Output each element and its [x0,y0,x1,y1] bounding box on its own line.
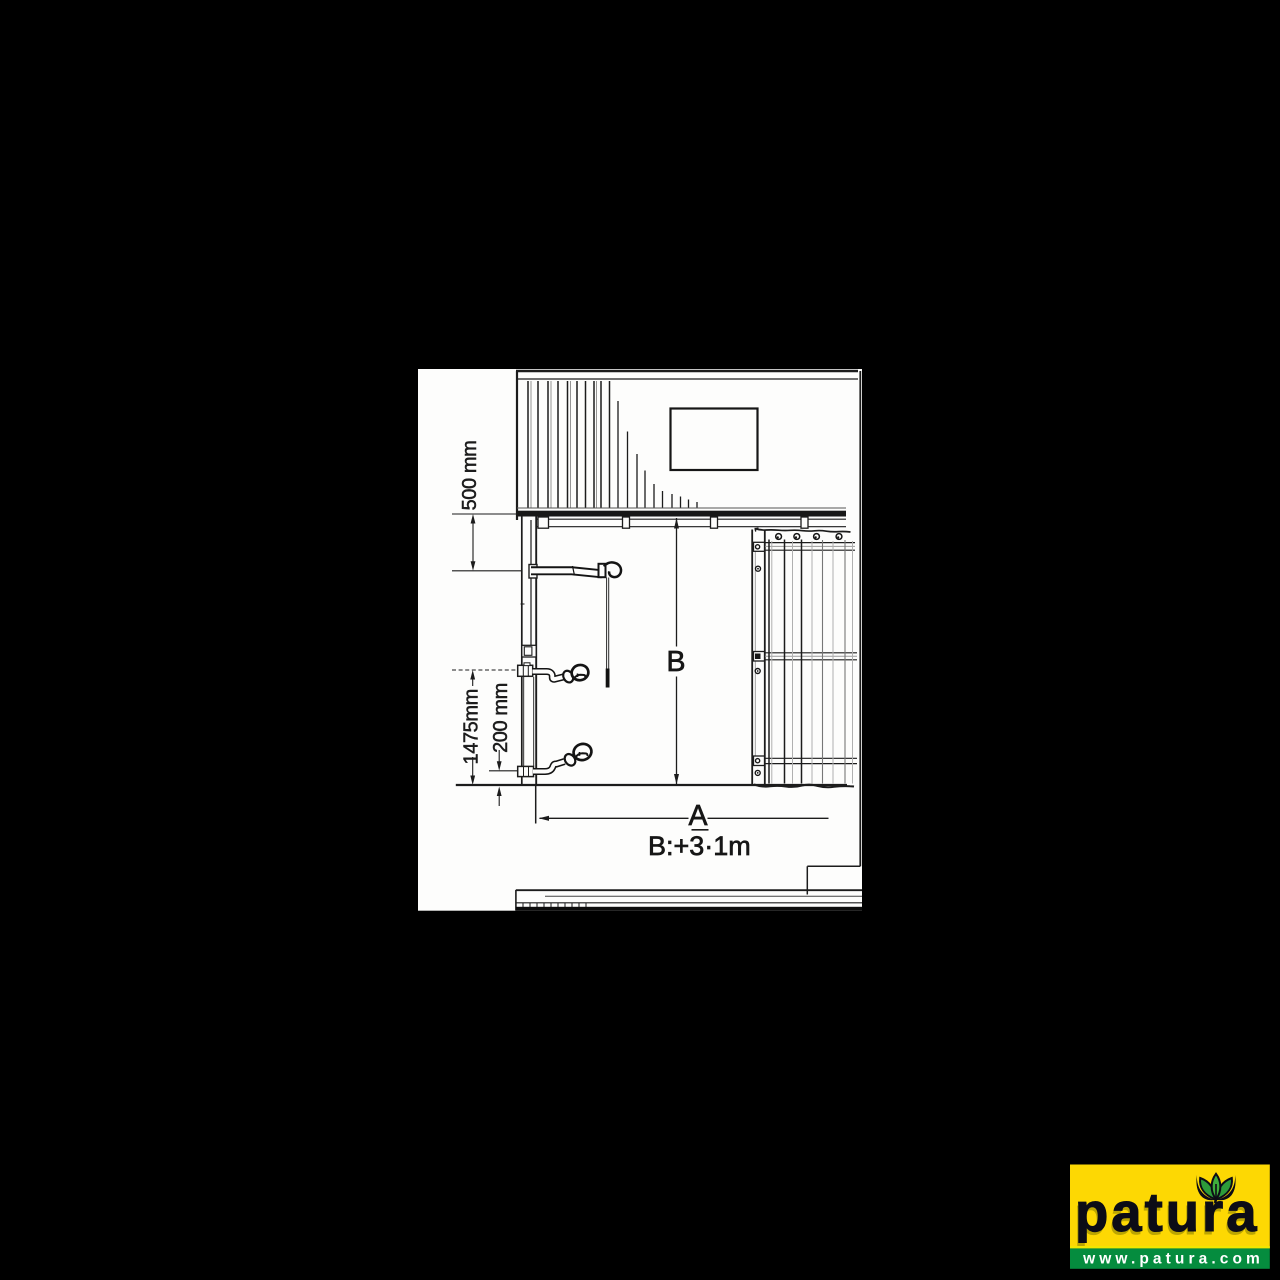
svg-text:500 mm: 500 mm [459,441,481,511]
svg-text:www.patura.com: www.patura.com [1082,1251,1264,1268]
svg-text:B:+3·1m: B:+3·1m [648,831,751,861]
svg-text:A: A [688,800,707,832]
svg-text:200 mm: 200 mm [490,683,512,753]
svg-text:B: B [666,646,685,678]
svg-text:1475mm: 1475mm [461,689,483,764]
